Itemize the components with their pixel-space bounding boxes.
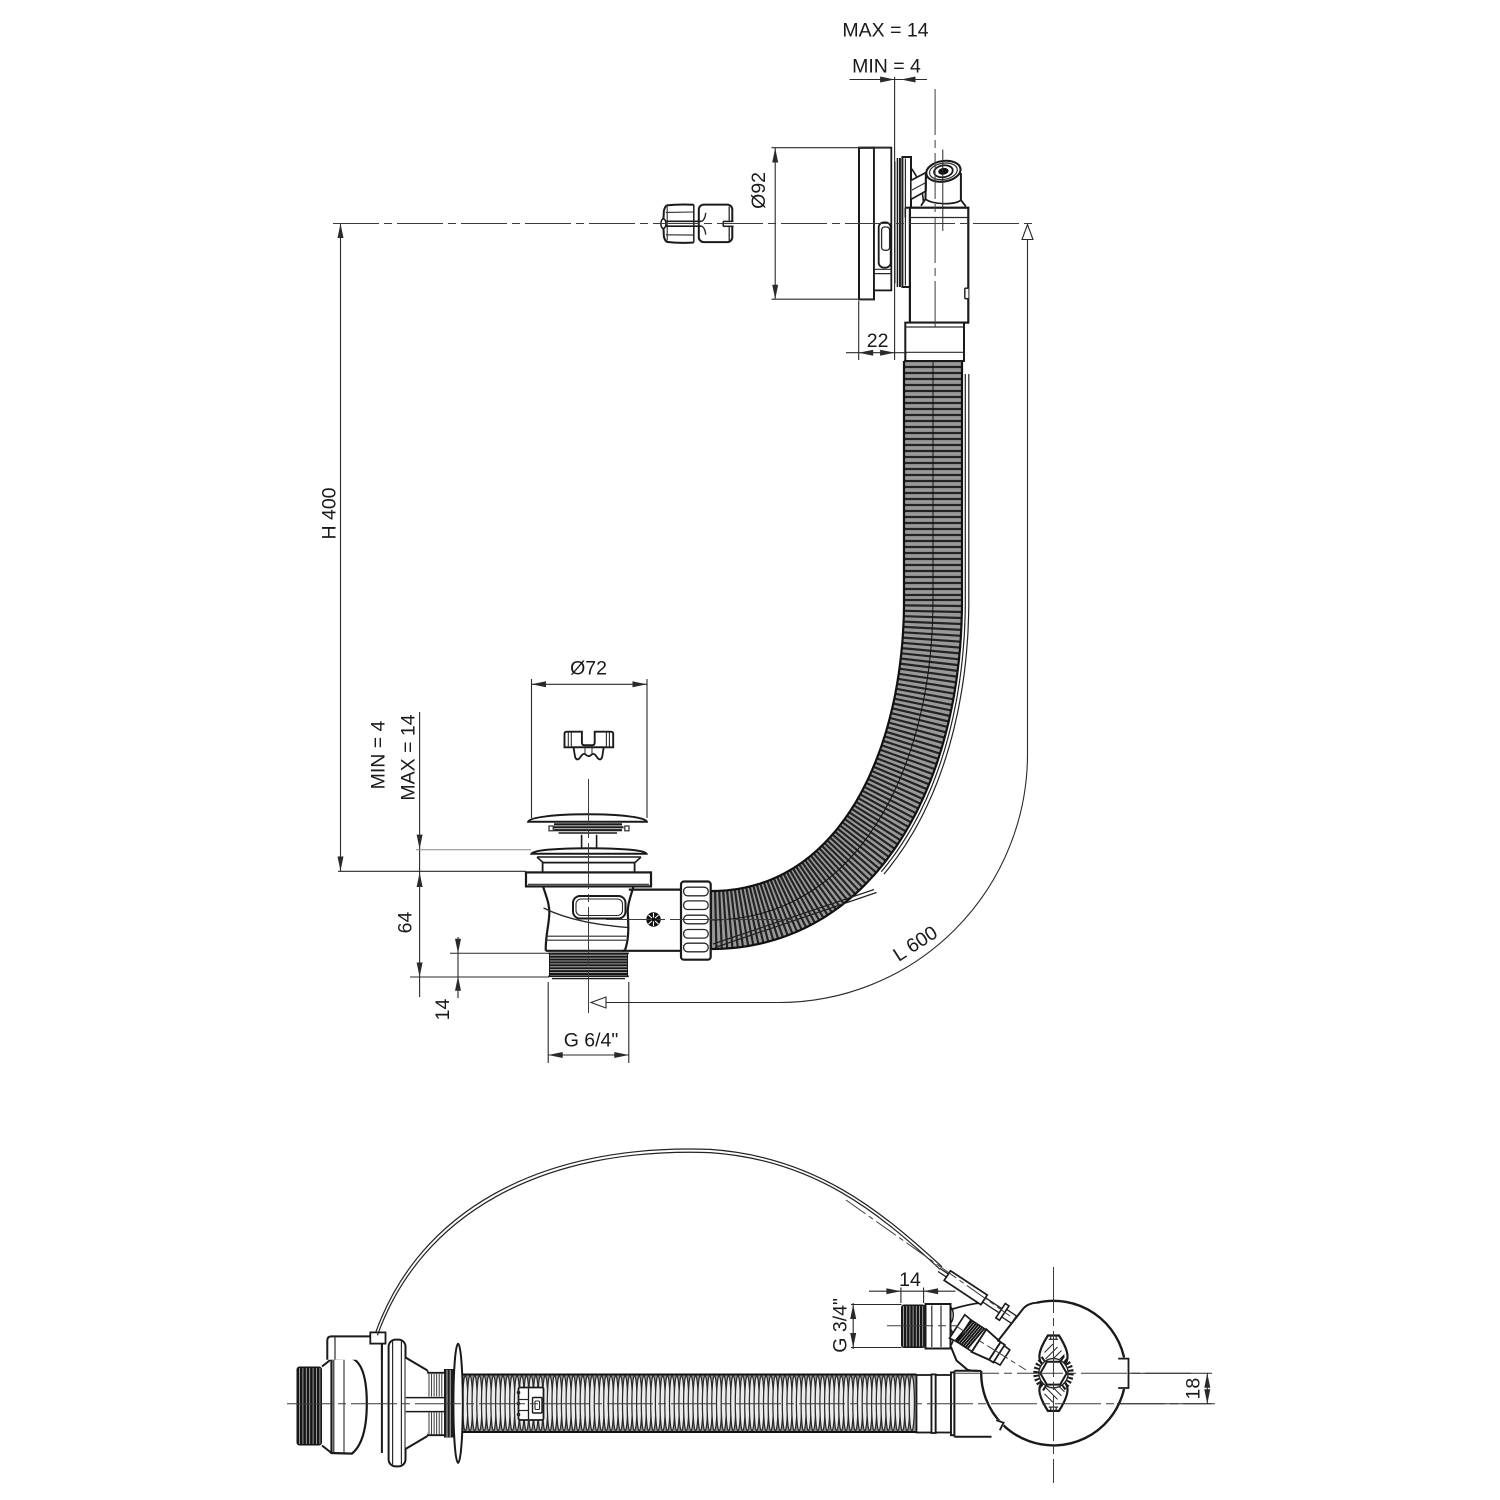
svg-text:MIN = 4: MIN = 4: [852, 56, 921, 78]
svg-text:G 6/4": G 6/4": [564, 1030, 619, 1052]
svg-text:MAX = 14: MAX = 14: [398, 714, 420, 800]
svg-text:Ø72: Ø72: [570, 657, 607, 679]
svg-text:14: 14: [432, 999, 454, 1021]
svg-text:H 400: H 400: [319, 487, 341, 539]
svg-text:22: 22: [867, 330, 889, 352]
svg-text:Ø92: Ø92: [748, 172, 770, 209]
svg-text:MAX = 14: MAX = 14: [842, 20, 928, 42]
svg-text:G 3/4": G 3/4": [830, 1298, 852, 1353]
svg-text:18: 18: [1182, 1378, 1204, 1400]
svg-text:14: 14: [899, 1269, 921, 1291]
svg-text:MIN = 4: MIN = 4: [368, 720, 390, 789]
svg-text:64: 64: [395, 912, 417, 934]
